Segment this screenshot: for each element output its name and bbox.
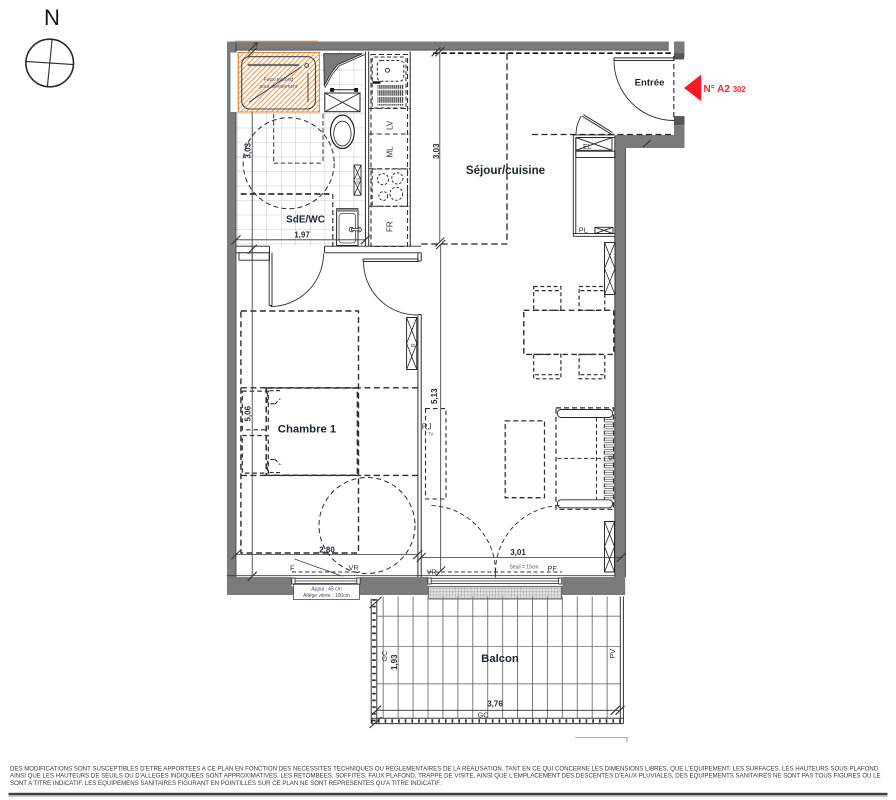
svg-text:GC: GC [478,711,489,720]
svg-text:Appui : 45 cm: Appui : 45 cm [311,587,342,593]
svg-text:ML: ML [386,146,395,158]
svg-text:TV: TV [428,432,434,437]
svg-text:EL: EL [583,144,592,151]
svg-text:VR: VR [349,563,359,572]
svg-text:GC: GC [380,651,389,662]
svg-text:FR: FR [386,221,395,232]
svg-text:1,97: 1,97 [294,231,310,240]
svg-text:R: R [411,343,417,347]
svg-text:Séjour/cuisine: Séjour/cuisine [466,164,546,177]
svg-text:3,03: 3,03 [432,143,441,159]
svg-text:F: F [290,564,295,573]
svg-text:Allège vitrée : 100cm: Allège vitrée : 100cm [303,593,350,599]
svg-text:RJ: RJ [422,423,432,432]
svg-text:SdE/WC: SdE/WC [286,215,325,226]
svg-text:SONT A TITRE INDICATIF. LES EQ: SONT A TITRE INDICATIF. LES EQUIPEMENS S… [10,780,441,787]
svg-text:N: N [44,5,60,30]
svg-text:DES MODIFICATIONS SONT SUSCEPT: DES MODIFICATIONS SONT SUSCEPTIBLES D'ET… [10,765,879,772]
svg-text:PV: PV [608,649,617,659]
svg-text:LV: LV [386,120,395,130]
svg-text:PL: PL [579,225,588,234]
svg-text:pour dévoiement: pour dévoiement [260,84,299,90]
svg-text:3,03: 3,03 [244,142,253,158]
svg-text:5,13: 5,13 [430,388,439,404]
svg-text:Entrée: Entrée [635,78,665,89]
svg-text:Seuil = 15cm: Seuil = 15cm [509,565,538,571]
svg-text:Faux-plafond: Faux-plafond [264,77,294,83]
svg-text:3,01: 3,01 [510,548,526,557]
svg-text:5,06: 5,06 [244,405,253,421]
svg-text:1,93: 1,93 [390,654,399,670]
svg-text:2,80: 2,80 [319,545,335,554]
svg-text:Balcon: Balcon [481,653,519,665]
svg-text:N° A2 302: N° A2 302 [704,84,747,95]
svg-text:Chambre 1: Chambre 1 [278,423,336,435]
svg-text:AINSI QUE LES HAUTEURS DE SEUI: AINSI QUE LES HAUTEURS DE SEUILS OU D'AL… [10,773,881,780]
svg-text:SS: SS [356,178,361,184]
svg-text:3,76: 3,76 [487,700,503,709]
